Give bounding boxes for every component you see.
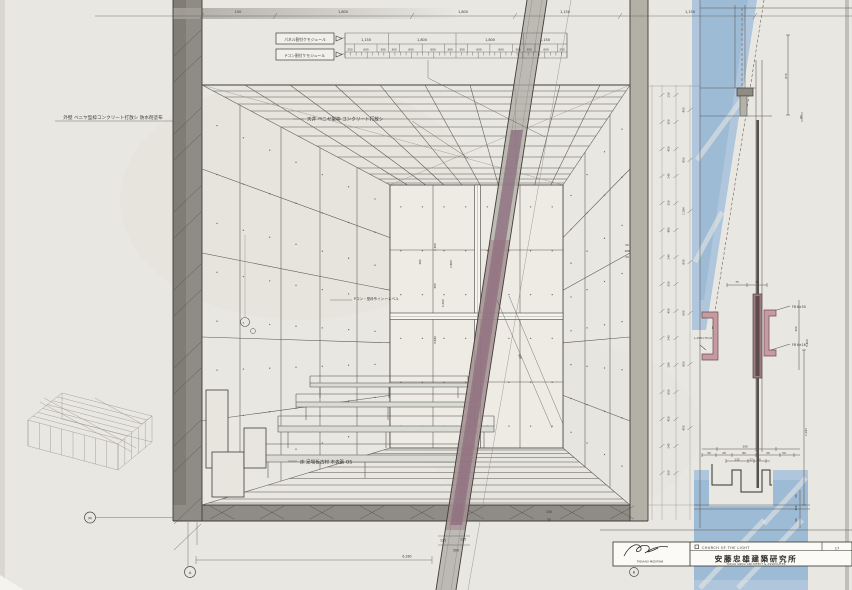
tie-hole-dot (295, 244, 296, 245)
tie-hole-dot (570, 398, 571, 399)
dim-label: 3,840 (433, 336, 437, 344)
dim-label: 80 (799, 115, 803, 119)
glass-line-lower (757, 378, 760, 488)
tie-hole-dot (604, 238, 605, 239)
tie-hole-dot (530, 338, 531, 339)
dim-label: 50 (625, 243, 629, 247)
dim-label: 20 (722, 451, 726, 455)
tie-hole-dot (586, 174, 587, 175)
tie-hole-dot (295, 285, 296, 286)
tie-hole-dot (243, 183, 244, 184)
tie-hole-dot (243, 368, 244, 369)
tie-hole-dot (530, 425, 531, 426)
tie-hole-dot (487, 250, 488, 251)
tie-hole-dot (374, 364, 375, 365)
tie-hole-dot (243, 415, 244, 416)
firm-name-english: TADAO ANDO ARCHITECT & ASSOCIATES (726, 562, 785, 566)
dim-label: 1,150 (560, 10, 570, 14)
tie-hole-dot (348, 258, 349, 259)
dim-label: 810 (667, 389, 671, 395)
dim-label: 125 (440, 539, 446, 543)
project-title: CHURCH OF THE LIGHT (702, 546, 750, 550)
dim-label: 305 (433, 283, 437, 289)
dim-label: 300 (447, 48, 453, 52)
firm-name-japanese: 安藤忠雄建築研究所 (715, 554, 798, 564)
tie-hole-dot (465, 294, 466, 295)
title-block: CHURCH OF THE LIGHT 17 安藤忠雄建築研究所 TADAO A… (613, 542, 852, 566)
tie-hole-dot (322, 442, 323, 443)
dim-label: 1,150 (685, 10, 695, 14)
dim-label: 1,150 (361, 38, 371, 42)
tie-hole-dot (216, 174, 217, 175)
angle-label: L-150×75×9 (694, 336, 712, 340)
dim-label: 6,280 (402, 555, 411, 559)
tie-hole-dot (295, 203, 296, 204)
tie-hole-dot (295, 367, 296, 368)
floor-note: 床 足場板古材 木表張 OS (300, 459, 352, 466)
tie-hole-dot (530, 206, 531, 207)
architectural-drawing: 外壁 ベニヤ型枠コンクリート打放シ 防水剤塗布 天井 ベニヤ型枠 コンクリート打… (0, 0, 852, 590)
tie-hole-dot (586, 212, 587, 213)
dim-label: 1,150 (540, 38, 550, 42)
dim-label: 855 (682, 157, 686, 163)
tie-hole-dot (604, 411, 605, 412)
tie-hole-dot (374, 397, 375, 398)
tie-hole-dot (348, 329, 349, 330)
tie-hole-dot (508, 382, 509, 383)
tie-hole-dot (570, 364, 571, 365)
dim-label: 210 (667, 92, 671, 98)
tie-hole-dot (374, 331, 375, 332)
tie-hole-dot (216, 272, 217, 273)
bench-seat (296, 402, 480, 407)
tie-hole-dot (374, 198, 375, 199)
dim-label: 135 (734, 458, 740, 462)
ceiling-note: 天井 ベニヤ型枠 コンクリート打放シ (307, 116, 384, 123)
tie-hole-dot (400, 294, 401, 295)
tie-hole-dot (570, 296, 571, 297)
tie-hole-dot (621, 465, 622, 466)
bench-seat (310, 383, 468, 387)
tie-hole-dot (530, 250, 531, 251)
dim-label: 450 (667, 308, 671, 314)
dim-label: 310 (667, 281, 671, 287)
dim-label: 600 (408, 48, 414, 52)
tie-hole-dot (508, 425, 509, 426)
tie-hole-dot (269, 324, 270, 325)
dim-label: 600 (363, 48, 369, 52)
tie-hole-dot (508, 294, 509, 295)
dim-label: 125 (460, 538, 466, 542)
tie-hole-dot (348, 436, 349, 437)
tie-hole-dot (269, 193, 270, 194)
tie-hole-dot (586, 366, 587, 367)
tie-hole-dot (508, 338, 509, 339)
dim-label: 20 (766, 451, 770, 455)
dim-label: 450 (667, 416, 671, 422)
tie-hole-dot (621, 321, 622, 322)
tie-hole-dot (604, 367, 605, 368)
tie-hole-dot (570, 229, 571, 230)
tie-hole-dot (295, 162, 296, 163)
tie-hole-dot (322, 174, 323, 175)
tie-hole-dot (348, 186, 349, 187)
tie-hole-dot (621, 128, 622, 129)
tie-hole-dot (487, 206, 488, 207)
tie-hole-dot (604, 454, 605, 455)
tie-hole-dot (322, 289, 323, 290)
tie-hole-dot (322, 251, 323, 252)
tie-hole-dot (243, 322, 244, 323)
tie-hole-dot (530, 294, 531, 295)
head-bracket (737, 88, 753, 96)
pcon-module-label: Pコン割付ケモジュール (285, 53, 325, 58)
tie-hole-dot (586, 442, 587, 443)
tie-hole-dot (621, 417, 622, 418)
dim-label: 250 (347, 48, 353, 52)
lectern-box (244, 428, 266, 468)
tie-hole-dot (621, 369, 622, 370)
dim-label: 50 (707, 451, 711, 455)
dim-label: 455 (682, 107, 686, 113)
tie-hole-dot (443, 206, 444, 207)
tie-hole-dot (269, 149, 270, 150)
dim-label: 150 (794, 326, 798, 332)
tie-hole-dot (604, 281, 605, 282)
dim-label: 600 (498, 48, 504, 52)
dim-label: 300 (459, 48, 465, 52)
tie-hole-dot (621, 177, 622, 178)
tie-hole-dot (586, 289, 587, 290)
tie-hole-dot (552, 338, 553, 339)
tie-hole-dot (348, 293, 349, 294)
tie-hole-dot (465, 250, 466, 251)
dim-label: 20 (625, 255, 629, 259)
dim-label: 480 (667, 227, 671, 233)
dim-label: 150 (235, 10, 242, 14)
tie-hole-dot (604, 151, 605, 152)
tie-hole-dot (621, 225, 622, 226)
tie-hole-dot (422, 250, 423, 251)
dim-label: 500 (453, 549, 459, 553)
tie-hole-dot (604, 324, 605, 325)
tie-hole-dot (269, 280, 270, 281)
tie-hole-dot (621, 273, 622, 274)
top-slab-poche (173, 8, 458, 19)
tie-hole-dot (586, 404, 587, 405)
tie-hole-dot (269, 237, 270, 238)
tie-hole-dot (400, 206, 401, 207)
dim-label: 5,400 (805, 339, 809, 347)
tie-hole-dot (443, 294, 444, 295)
tie-hole-dot (552, 425, 553, 426)
tie-hole-dot (243, 276, 244, 277)
dim-label: 600 (682, 310, 686, 316)
dim-label: 240 (667, 254, 671, 260)
tie-hole-dot (552, 382, 553, 383)
dim-label: 450 (667, 146, 671, 152)
dim-label: 245 (667, 443, 671, 449)
dim-label: 250 (559, 48, 565, 52)
dim-label: 50 (782, 451, 786, 455)
tie-hole-dot (604, 194, 605, 195)
dim-label: 310 (667, 200, 671, 206)
dim-label: 50 (547, 518, 551, 522)
dim-label: 600 (430, 48, 436, 52)
dim-label: 50 (794, 494, 798, 498)
dim-label: 870 (784, 73, 788, 79)
dim-label: 1,800 (338, 10, 348, 14)
dim-label: 1,800 (458, 10, 468, 14)
dim-label: 856 (682, 259, 686, 265)
dim-label: 600 (543, 48, 549, 52)
tie-hole-dot (269, 411, 270, 412)
fb-top-label: FB 6×50 (792, 305, 806, 309)
tie-hole-dot (322, 366, 323, 367)
dim-label: 75 (755, 280, 759, 284)
dim-label: 80 (742, 451, 746, 455)
dim-label: 1,800 (417, 38, 427, 42)
tie-hole-dot (269, 368, 270, 369)
drawing-sheet: 外壁 ベニヤ型枠コンクリート打放シ 防水剤塗布 天井 ベニヤ型枠 コンクリート打… (0, 0, 852, 590)
dim-label: 380 (418, 259, 422, 265)
tie-hole-dot (586, 251, 587, 252)
tie-hole-dot (374, 231, 375, 232)
dim-label: 600 (476, 48, 482, 52)
tie-hole-dot (552, 206, 553, 207)
dim-label: 2,160 (433, 243, 437, 251)
fb-bottom-label: FB 6×16 (792, 343, 806, 347)
tie-hole-dot (570, 263, 571, 264)
marker-left-label: M (88, 515, 91, 520)
tie-hole-dot (570, 432, 571, 433)
right-wall-poche (630, 0, 648, 521)
tie-hole-dot (322, 327, 323, 328)
tie-hole-dot (422, 294, 423, 295)
tie-hole-dot (295, 408, 296, 409)
marker-bottom-label: A (189, 570, 192, 575)
dim-label: 245 (667, 173, 671, 179)
tie-hole-dot (216, 321, 217, 322)
tie-hole-dot (465, 338, 466, 339)
tie-hole-dot (530, 382, 531, 383)
tie-hole-dot (295, 449, 296, 450)
exterior-wall-note: 外壁 ベニヤ型枠コンクリート打放シ 防水剤塗布 (63, 114, 163, 121)
dim-label: 150 (667, 119, 671, 125)
steel-mullion-core (756, 296, 760, 376)
dim-label: 180 (624, 249, 630, 253)
tie-hole-dot (243, 137, 244, 138)
dim-label: 1,800 (485, 38, 495, 42)
dim-label: 243 (667, 335, 671, 341)
tie-hole-dot (552, 294, 553, 295)
pulpit-box (212, 452, 244, 497)
tie-hole-dot (422, 206, 423, 207)
left-wall-poche-core (173, 0, 186, 521)
tie-hole-dot (586, 327, 587, 328)
dim-label: 855 (682, 361, 686, 367)
dim-label: 1,000 (441, 299, 445, 307)
head-anchor (740, 96, 747, 116)
wall-joint-note: Pコン・型枠ライン ←レベル (354, 296, 399, 301)
dim-label: 150 (667, 470, 671, 476)
dim-label: 2,280 (682, 207, 686, 215)
tie-hole-dot (243, 230, 244, 231)
tie-hole-dot (216, 223, 217, 224)
dim-label: 50 (757, 458, 761, 462)
tie-hole-dot (348, 400, 349, 401)
glass-line-upper (757, 120, 760, 294)
tie-hole-dot (374, 265, 375, 266)
tie-hole-dot (400, 338, 401, 339)
sheet-number: 17 (835, 546, 839, 550)
dim-label: 300 (526, 48, 532, 52)
tie-hole-dot (570, 195, 571, 196)
panel-module-label: パネル割付ケモジュール (284, 37, 326, 42)
dim-label: 300 (391, 48, 397, 52)
dim-label: 455 (682, 425, 686, 431)
dim-label: 280 (667, 362, 671, 368)
dim-label: 300 (380, 48, 386, 52)
tie-hole-dot (322, 212, 323, 213)
paper-edge-left (0, 0, 5, 590)
tie-hole-dot (570, 330, 571, 331)
dim-label: 150 (794, 505, 798, 511)
tie-hole-dot (295, 326, 296, 327)
tie-hole-dot (216, 125, 217, 126)
tie-hole-dot (465, 206, 466, 207)
dim-label: 17 (749, 458, 753, 462)
tie-hole-dot (400, 250, 401, 251)
dim-label: 50 (794, 518, 798, 522)
tie-hole-dot (348, 365, 349, 366)
tie-hole-dot (443, 250, 444, 251)
tie-hole-dot (422, 338, 423, 339)
dim-label: 75 (735, 280, 739, 284)
tie-hole-dot (216, 369, 217, 370)
dim-label: 2,292 (804, 428, 808, 436)
dim-label: 150 (546, 510, 552, 514)
tie-hole-dot (348, 222, 349, 223)
dim-label: 390 (742, 445, 748, 449)
dim-label: 300 (515, 48, 521, 52)
tie-hole-dot (443, 338, 444, 339)
tie-hole-dot (552, 250, 553, 251)
signature-name: TADAAKI MIZUTANI (636, 560, 664, 564)
dim-label: 2,860 (449, 260, 453, 268)
